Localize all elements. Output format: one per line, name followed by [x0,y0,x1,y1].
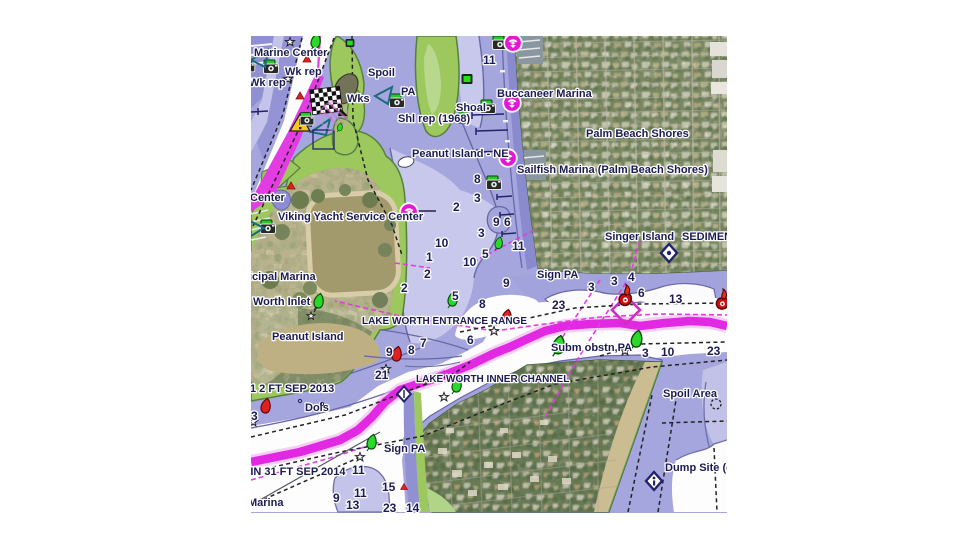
svg-text:9: 9 [333,491,340,505]
svg-text:Sign PA: Sign PA [384,443,425,455]
svg-text:Spoil Area: Spoil Area [663,388,718,400]
svg-text:8: 8 [479,297,486,311]
svg-text:7: 7 [420,336,427,350]
svg-text:5: 5 [482,247,489,261]
svg-text:9: 9 [493,215,500,229]
svg-text:13: 13 [346,498,360,512]
svg-text:Wk rep: Wk rep [285,66,322,78]
svg-text:15: 15 [382,480,396,494]
svg-text:23: 23 [552,298,566,312]
svg-text:13: 13 [669,292,683,306]
svg-text:9: 9 [503,276,510,290]
svg-text:3: 3 [642,346,649,360]
svg-text:21: 21 [375,368,389,382]
svg-text:2: 2 [453,200,460,214]
svg-text:Dols: Dols [305,402,329,414]
svg-text:Shl rep (1968): Shl rep (1968) [398,113,470,125]
svg-text:Center: Center [250,192,286,204]
svg-text:3: 3 [611,274,618,288]
svg-text:Peanut Island - NE: Peanut Island - NE [412,148,509,160]
svg-text:LAKE WORTH INNER CHANNEL: LAKE WORTH INNER CHANNEL [416,374,569,385]
svg-text:5: 5 [452,289,459,303]
svg-text:Buccaneer Marina: Buccaneer Marina [497,88,593,100]
svg-text:Sign PA: Sign PA [537,269,578,281]
svg-text:10: 10 [661,345,675,359]
svg-text:SIN 31 FT SEP 2014: SIN 31 FT SEP 2014 [243,466,346,478]
svg-text:10: 10 [463,255,477,269]
svg-text:8: 8 [408,343,415,357]
svg-text:6: 6 [638,286,645,300]
svg-text:3: 3 [478,226,485,240]
svg-text:Sailfish Marina (Palm Beach Sh: Sailfish Marina (Palm Beach Shores) [517,164,708,176]
svg-text:8: 8 [474,172,481,186]
svg-text:14: 14 [406,501,420,515]
svg-text:icipal Marina: icipal Marina [249,271,317,283]
svg-text:23: 23 [707,344,721,358]
svg-text:6: 6 [467,333,474,347]
svg-text:PA: PA [401,86,416,98]
svg-text:11: 11 [483,53,496,67]
svg-text:3: 3 [251,409,258,423]
svg-text:3: 3 [588,280,595,294]
svg-text:Singer Island: Singer Island [605,231,674,243]
svg-text:2: 2 [424,267,431,281]
svg-text:11: 11 [352,463,365,477]
svg-text:Subm obstn,PA: Subm obstn,PA [551,342,632,354]
svg-text:9: 9 [386,345,393,359]
svg-text:Marine Center: Marine Center [254,47,328,59]
svg-text:3: 3 [474,191,481,205]
svg-text:4: 4 [628,270,635,284]
svg-text:23: 23 [383,501,397,515]
svg-text:1: 1 [426,250,433,264]
svg-text:1 2 FT SEP 2013: 1 2 FT SEP 2013 [250,383,334,395]
svg-text:Viking Yacht Service Center: Viking Yacht Service Center [278,211,424,223]
svg-text:6: 6 [504,215,511,229]
svg-text:11: 11 [512,239,525,253]
svg-text:Wk rep: Wk rep [249,77,286,89]
svg-text:Wks: Wks [347,93,370,105]
svg-text:Spoil: Spoil [368,67,395,79]
svg-text:LAKE WORTH ENTRANCE RANGE: LAKE WORTH ENTRANCE RANGE [362,316,527,327]
svg-text:10: 10 [435,236,449,250]
svg-text:Peanut Island: Peanut Island [272,331,344,343]
svg-text:Marina: Marina [248,497,284,509]
svg-text:Palm Beach Shores: Palm Beach Shores [586,128,689,140]
svg-text:2: 2 [401,281,408,295]
svg-text:Worth Inlet: Worth Inlet [253,296,311,308]
svg-text:Shoal: Shoal [456,102,486,114]
